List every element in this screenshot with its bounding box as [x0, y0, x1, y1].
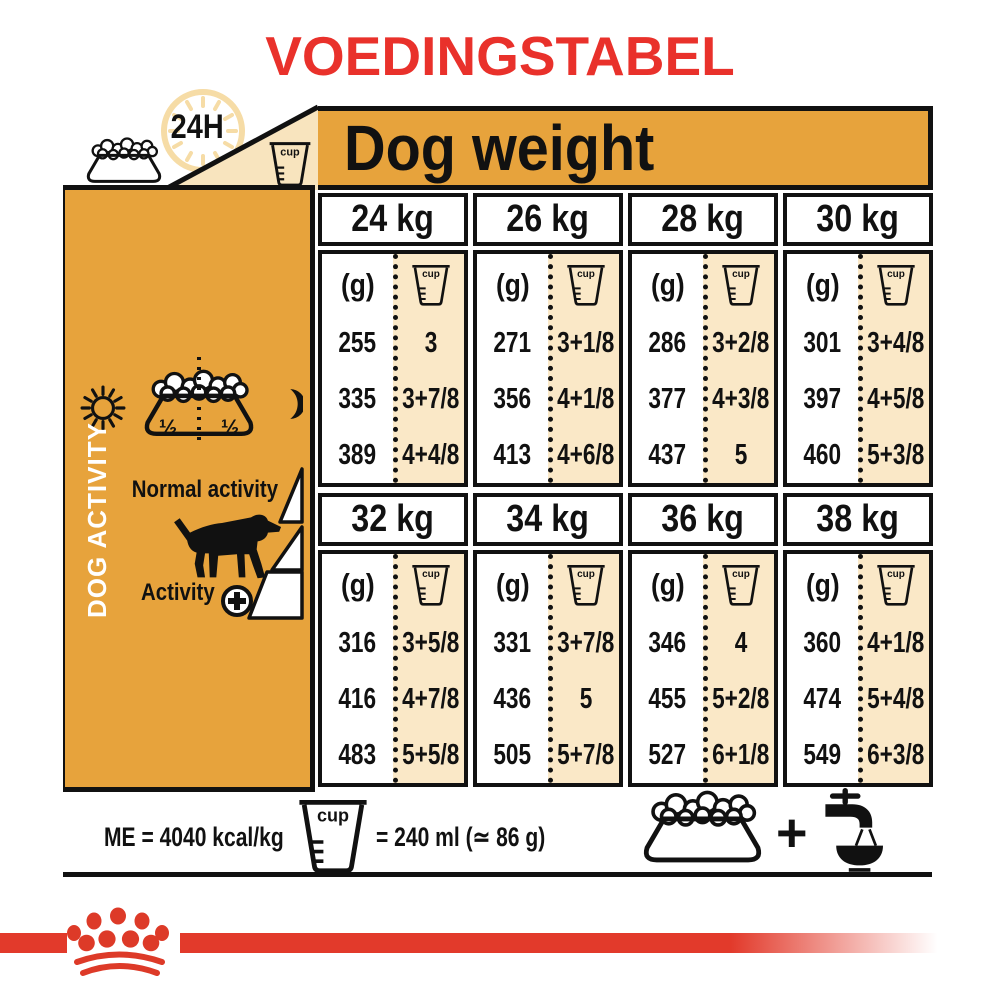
red-bar-left	[0, 933, 67, 953]
plus-symbol: +	[776, 802, 808, 864]
weight-column: 24 kg (g) 255335389 33+7/84+4/8	[318, 193, 468, 487]
cups-value: 3+1/8	[553, 316, 619, 372]
footer-divider	[63, 872, 932, 877]
grams-header: (g)	[651, 567, 685, 603]
grams-value: 460	[787, 427, 858, 483]
weight-body: (g) 301397460 3+4/84+5/85+3/8	[783, 250, 933, 487]
grams-header: (g)	[496, 267, 530, 303]
grams-value: 436	[477, 672, 548, 728]
grams-value: 316	[322, 616, 393, 672]
half-left-label: ½	[159, 415, 177, 440]
footer-bowl-icon	[630, 790, 775, 872]
grams-value: 335	[322, 372, 393, 428]
cups-column: 3+1/84+1/84+6/8	[548, 254, 619, 483]
cup-header-cell	[553, 554, 619, 616]
cup-equivalence-icon	[297, 794, 369, 878]
weight-body: (g) 255335389 33+7/84+4/8	[318, 250, 468, 487]
cup-header-cell	[553, 254, 619, 316]
header-diagonal	[160, 104, 322, 192]
grams-value: 271	[477, 316, 548, 372]
grams-value: 397	[787, 372, 858, 428]
table-section-bottom: 32 kg (g) 316416483 3+5/84+7/85+5/8 34 k…	[318, 493, 933, 787]
cups-value: 5+3/8	[863, 427, 929, 483]
grams-value: 346	[632, 616, 703, 672]
cup-icon	[411, 262, 451, 308]
cups-value: 3+2/8	[708, 316, 774, 372]
cups-value: 5+4/8	[863, 672, 929, 728]
cups-value: 4+1/8	[553, 372, 619, 428]
weight-header: 24 kg	[318, 193, 468, 246]
cups-value: 3+7/8	[553, 616, 619, 672]
grams-column: (g) 271356413	[477, 254, 548, 483]
grams-header-cell: (g)	[632, 554, 703, 616]
plus-icon	[223, 587, 251, 615]
weight-column: 32 kg (g) 316416483 3+5/84+7/85+5/8	[318, 493, 468, 787]
cups-column: 3+7/855+7/8	[548, 554, 619, 783]
weight-label: 32 kg	[352, 498, 435, 541]
activity-step-1	[280, 469, 302, 522]
cups-column: 3+5/84+7/85+5/8	[393, 554, 464, 783]
cup-header-cell	[398, 554, 464, 616]
cup-icon	[876, 562, 916, 608]
grams-value: 356	[477, 372, 548, 428]
activity-steps-icon	[215, 460, 310, 620]
grams-header: (g)	[806, 567, 840, 603]
cups-value: 6+3/8	[863, 727, 929, 783]
weight-column: 36 kg (g) 346455527 45+2/86+1/8	[628, 493, 778, 787]
grams-header-cell: (g)	[322, 254, 393, 316]
cup-icon	[566, 262, 606, 308]
weight-column: 28 kg (g) 286377437 3+2/84+3/85	[628, 193, 778, 487]
grams-value: 301	[787, 316, 858, 372]
moon-icon	[269, 388, 303, 420]
dog-weight-band: Dog weight	[318, 106, 933, 190]
dog-weight-label: Dog weight	[344, 111, 654, 185]
grams-column: (g) 255335389	[322, 254, 393, 483]
cup-header-cell	[708, 554, 774, 616]
weight-header: 34 kg	[473, 493, 623, 546]
cups-column: 4+1/85+4/86+3/8	[858, 554, 929, 783]
weight-label: 24 kg	[352, 198, 435, 241]
activity-plus-label: Activity	[65, 579, 215, 607]
grams-value: 483	[322, 727, 393, 783]
cup-icon	[721, 562, 761, 608]
grams-header: (g)	[806, 267, 840, 303]
weight-column: 34 kg (g) 331436505 3+7/855+7/8	[473, 493, 623, 787]
grams-value: 527	[632, 727, 703, 783]
food-bowl-icon	[78, 137, 170, 189]
grams-column: (g) 286377437	[632, 254, 703, 483]
cups-column: 33+7/84+4/8	[393, 254, 464, 483]
activity-step-2	[272, 527, 302, 570]
grams-value: 455	[632, 672, 703, 728]
cups-value: 4+6/8	[553, 427, 619, 483]
grams-value: 286	[632, 316, 703, 372]
grams-header: (g)	[341, 267, 375, 303]
weight-header: 36 kg	[628, 493, 778, 546]
grams-value: 331	[477, 616, 548, 672]
grams-value: 255	[322, 316, 393, 372]
cups-value: 4+5/8	[863, 372, 929, 428]
weight-header: 26 kg	[473, 193, 623, 246]
cup-header-cell	[708, 254, 774, 316]
cup-equivalence-label: = 240 ml (≃ 86 g)	[376, 822, 593, 853]
cups-value: 3	[398, 316, 464, 372]
grams-header-cell: (g)	[322, 554, 393, 616]
grams-column: (g) 301397460	[787, 254, 858, 483]
cups-value: 4+4/8	[398, 427, 464, 483]
cups-value: 4+7/8	[398, 672, 464, 728]
weight-body: (g) 286377437 3+2/84+3/85	[628, 250, 778, 487]
grams-value: 360	[787, 616, 858, 672]
cups-value: 4	[708, 616, 774, 672]
weight-body: (g) 316416483 3+5/84+7/85+5/8	[318, 550, 468, 787]
half-ration-bowl-icon: ½ ½	[128, 355, 270, 453]
grams-value: 437	[632, 427, 703, 483]
cups-column: 3+2/84+3/85	[703, 254, 774, 483]
weight-label: 30 kg	[817, 198, 900, 241]
cup-icon	[411, 562, 451, 608]
table-section-top: 24 kg (g) 255335389 33+7/84+4/8 26 kg (g…	[318, 193, 933, 487]
weight-label: 34 kg	[507, 498, 590, 541]
grams-column: (g) 331436505	[477, 554, 548, 783]
cups-column: 3+4/84+5/85+3/8	[858, 254, 929, 483]
cups-value: 5	[708, 427, 774, 483]
grams-column: (g) 316416483	[322, 554, 393, 783]
weight-header: 32 kg	[318, 493, 468, 546]
cup-header-cell	[863, 254, 929, 316]
dog-activity-sidebar: ½ ½ DOG ACTIVITY Normal activity Activit…	[63, 185, 315, 792]
cup-icon	[721, 262, 761, 308]
water-tap-icon	[818, 788, 894, 878]
cups-value: 5+2/8	[708, 672, 774, 728]
grams-value: 505	[477, 727, 548, 783]
cups-value: 5+5/8	[398, 727, 464, 783]
weight-label: 38 kg	[817, 498, 900, 541]
weight-column: 30 kg (g) 301397460 3+4/84+5/85+3/8	[783, 193, 933, 487]
grams-header: (g)	[496, 567, 530, 603]
red-bar-right	[180, 933, 945, 953]
weight-column: 38 kg (g) 360474549 4+1/85+4/86+3/8	[783, 493, 933, 787]
weight-header: 28 kg	[628, 193, 778, 246]
cup-header-cell	[398, 254, 464, 316]
feeding-table-page: cup VOEDINGSTABEL 24H Dog weight	[0, 0, 1000, 1000]
grams-value: 389	[322, 427, 393, 483]
weight-body: (g) 346455527 45+2/86+1/8	[628, 550, 778, 787]
grams-header-cell: (g)	[632, 254, 703, 316]
cups-value: 5+7/8	[553, 727, 619, 783]
cup-icon	[566, 562, 606, 608]
weight-body: (g) 331436505 3+7/855+7/8	[473, 550, 623, 787]
grams-value: 413	[477, 427, 548, 483]
grams-value: 549	[787, 727, 858, 783]
page-title: VOEDINGSTABEL	[0, 24, 1000, 88]
grams-value: 474	[787, 672, 858, 728]
grams-header-cell: (g)	[477, 554, 548, 616]
cup-header-cell	[863, 554, 929, 616]
weight-body: (g) 360474549 4+1/85+4/86+3/8	[783, 550, 933, 787]
grams-header: (g)	[651, 267, 685, 303]
cups-value: 3+5/8	[398, 616, 464, 672]
half-right-label: ½	[221, 415, 239, 440]
cups-value: 3+7/8	[398, 372, 464, 428]
grams-header-cell: (g)	[787, 554, 858, 616]
activity-step-3	[249, 572, 302, 618]
grams-header-cell: (g)	[787, 254, 858, 316]
weight-header: 38 kg	[783, 493, 933, 546]
cups-value: 4+1/8	[863, 616, 929, 672]
grams-header-cell: (g)	[477, 254, 548, 316]
weight-label: 26 kg	[507, 198, 590, 241]
weight-header: 30 kg	[783, 193, 933, 246]
cups-value: 6+1/8	[708, 727, 774, 783]
cup-icon	[876, 262, 916, 308]
cups-value: 5	[553, 672, 619, 728]
cups-value: 4+3/8	[708, 372, 774, 428]
grams-column: (g) 346455527	[632, 554, 703, 783]
weight-label: 36 kg	[662, 498, 745, 541]
weight-column: 26 kg (g) 271356413 3+1/84+1/84+6/8	[473, 193, 623, 487]
cups-column: 45+2/86+1/8	[703, 554, 774, 783]
grams-value: 416	[322, 672, 393, 728]
grams-column: (g) 360474549	[787, 554, 858, 783]
grams-value: 377	[632, 372, 703, 428]
weight-label: 28 kg	[662, 198, 745, 241]
brand-paw-crown-logo	[66, 906, 170, 978]
feeding-table: 24 kg (g) 255335389 33+7/84+4/8 26 kg (g…	[318, 193, 933, 787]
grams-header: (g)	[341, 567, 375, 603]
weight-body: (g) 271356413 3+1/84+1/84+6/8	[473, 250, 623, 487]
cups-value: 3+4/8	[863, 316, 929, 372]
